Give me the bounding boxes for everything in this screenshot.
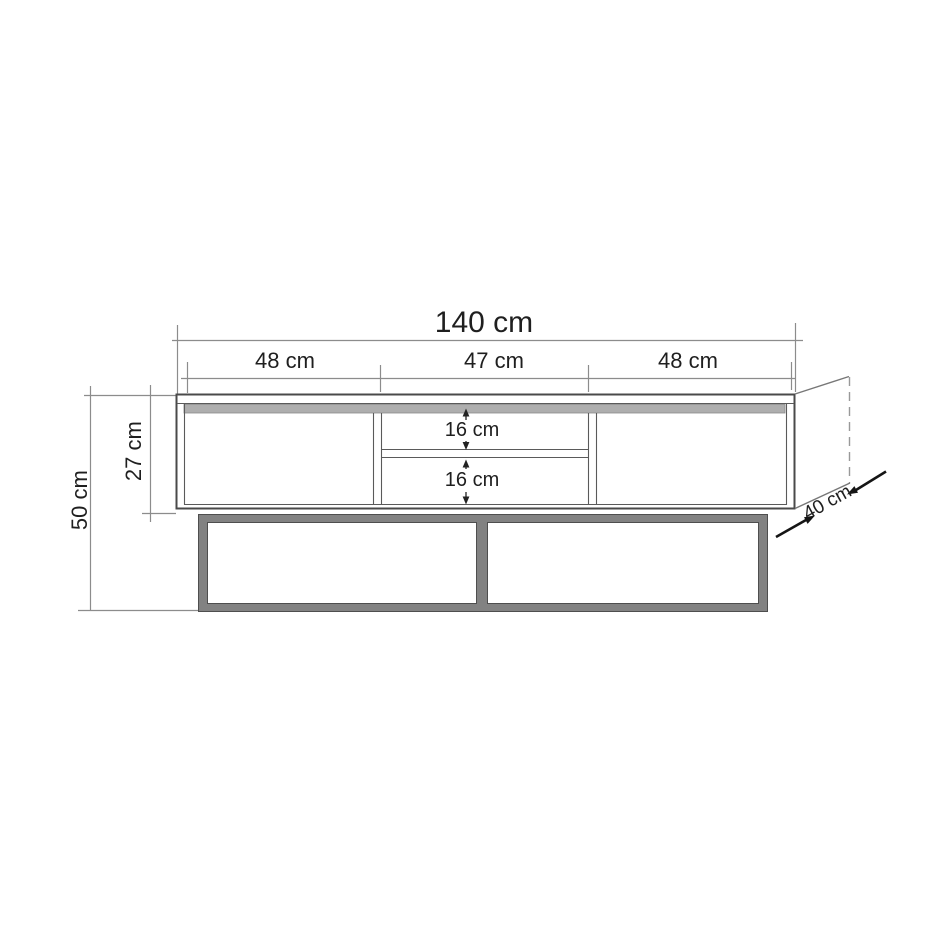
- cabinet-front-view: [177, 395, 795, 509]
- overall-height-dimension-label: 50 cm: [68, 460, 92, 540]
- base-frame-left-opening: [208, 523, 477, 604]
- body-height-dimension-label: 27 cm: [122, 411, 146, 491]
- niche-lower-dimension-label: 16 cm: [432, 469, 512, 491]
- section-center-dimension-label: 47 cm: [444, 349, 544, 373]
- metal-base-frame: [199, 515, 768, 612]
- furniture-technical-drawing: 140 cm 48 cm 47 cm 48 cm 16 cm 16 cm 27 …: [0, 0, 936, 935]
- total-width-dimension-label: 140 cm: [404, 306, 564, 339]
- top-back-edge-line: [795, 377, 849, 395]
- niche-upper-dimension-label: 16 cm: [432, 419, 512, 441]
- section-right-dimension-label: 48 cm: [638, 349, 738, 373]
- top-recess-strip: [184, 405, 785, 414]
- section-left-dimension-label: 48 cm: [235, 349, 335, 373]
- base-frame-right-opening: [488, 523, 759, 604]
